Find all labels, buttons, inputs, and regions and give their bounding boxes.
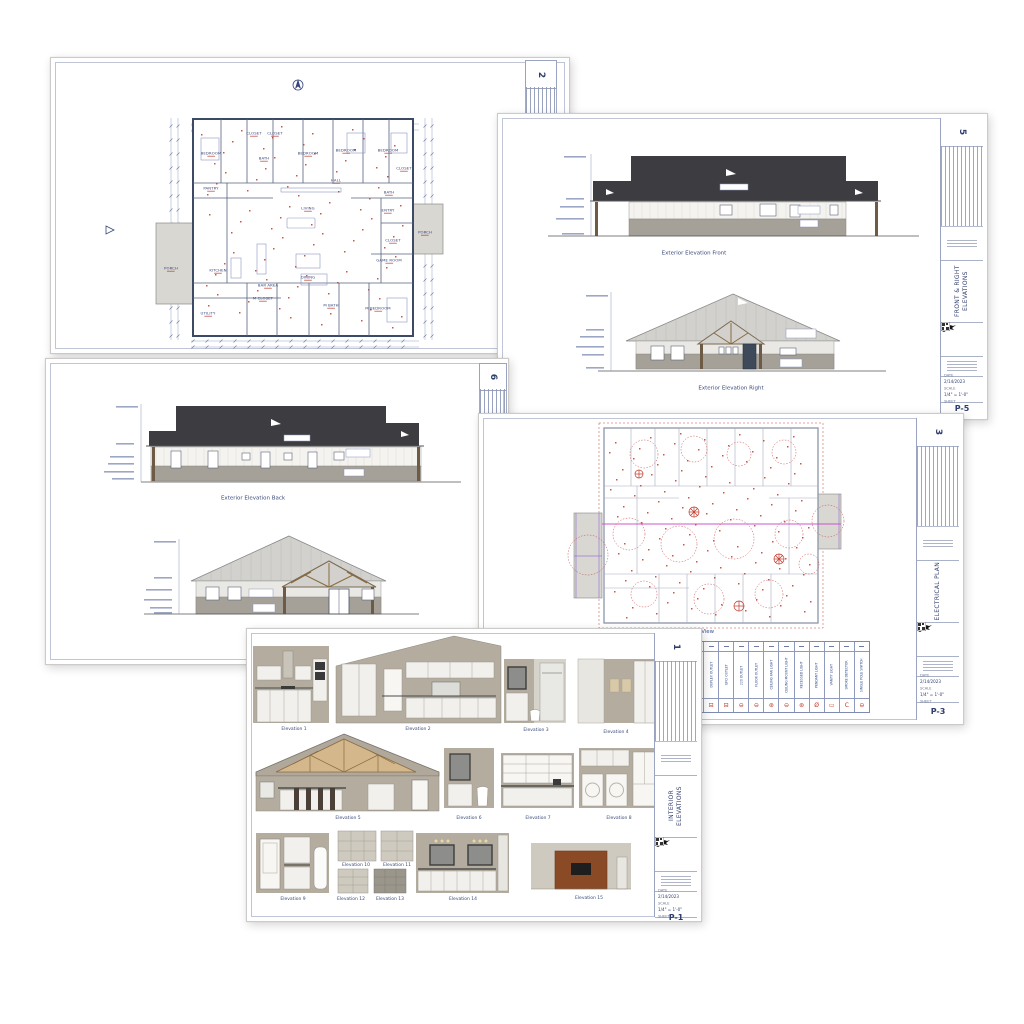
room-label: BEDROOM bbox=[201, 151, 222, 156]
titleblock-field-text: 1/4" = 1'-0" bbox=[944, 393, 968, 397]
room-label: BATH bbox=[259, 156, 270, 161]
legend-column: PENDANT LIGHTØ bbox=[810, 642, 825, 712]
legend-symbol-icon: ⊖ bbox=[779, 699, 793, 712]
builder-logo bbox=[655, 837, 697, 872]
room-label: BEDROOM bbox=[336, 148, 357, 153]
elevation-title: Exterior Elevation Front bbox=[662, 250, 727, 256]
title-block: 5FRONT & RIGHT ELEVATIONSDATE2/14/2023SC… bbox=[940, 118, 983, 415]
legend-count-cell bbox=[840, 642, 854, 652]
interior-elevation-labels: Elevation 1Elevation 2Elevation 3Elevati… bbox=[247, 629, 701, 921]
room-label: BEDROOM bbox=[378, 148, 399, 153]
legend-symbol-icon: ⊛ bbox=[764, 699, 778, 712]
legend-label: 220 OUTLET bbox=[734, 652, 748, 699]
room-label: KITCHEN bbox=[209, 268, 226, 273]
room-label: CLOSET bbox=[267, 131, 282, 136]
sheet-number-tab: 3 bbox=[917, 418, 959, 447]
room-label: CLOSET bbox=[385, 238, 400, 243]
legend-symbol-icon: ⊖ bbox=[734, 699, 748, 712]
legend-label: PENDANT LIGHT bbox=[810, 652, 824, 699]
room-label: CLOSET bbox=[246, 131, 261, 136]
legend-count-cell bbox=[719, 642, 733, 652]
titleblock-field-text: 1/4" = 1'-0" bbox=[920, 693, 944, 697]
qr-code-icon bbox=[655, 837, 664, 846]
revision-table bbox=[525, 87, 557, 114]
room-label: BAR AREA bbox=[258, 283, 278, 288]
legend-label: FLOOR OUTLET bbox=[749, 652, 763, 699]
legend-count-cell bbox=[734, 642, 748, 652]
title-block: 3ELECTRICAL PLANDATE2/14/2023SCALE1/4" =… bbox=[916, 418, 959, 720]
legend-count-cell bbox=[855, 642, 869, 652]
legend-symbol-icon: Ø bbox=[810, 699, 824, 712]
sheet-number-tab: 1 bbox=[655, 633, 697, 662]
room-label: BATH bbox=[384, 190, 395, 195]
legend-count-cell bbox=[764, 642, 778, 652]
legend-label: VANITY LIGHT bbox=[825, 652, 839, 699]
legend-symbol-icon: ⊖ bbox=[749, 699, 763, 712]
titleblock-field-text: 2/14/2023 bbox=[944, 380, 968, 384]
titleblock-field-text: 2/14/2023 bbox=[920, 680, 944, 684]
sheet-floor-plan[interactable]: BEDROOMCLOSETCLOSETBATHBEDROOMBEDROOMBED… bbox=[50, 57, 570, 354]
room-label: M CLOSET bbox=[253, 296, 273, 301]
titleblock-field-text: DATE bbox=[920, 674, 942, 678]
interior-elevation-label: Elevation 9 bbox=[280, 897, 305, 902]
interior-elevation-label: Elevation 11 bbox=[383, 863, 411, 868]
sheet-front-right-elevations[interactable]: Exterior Elevation FrontExterior Elevati… bbox=[497, 113, 988, 420]
legend-symbol-icon: C bbox=[840, 699, 854, 712]
interior-elevation-label: Elevation 5 bbox=[335, 816, 360, 821]
legend-label: GFCI OUTLET bbox=[719, 652, 733, 699]
electrical-legend-table: ELECTRICAL PANEL▮DUPLEX OUTLET⊟GFCI OUTL… bbox=[688, 641, 870, 713]
interior-elevation-label: Elevation 3 bbox=[523, 728, 548, 733]
interior-elevation-label: Elevation 10 bbox=[342, 863, 370, 868]
qr-code-icon bbox=[917, 622, 926, 631]
revision-table bbox=[941, 146, 983, 227]
room-label: BEDROOM bbox=[298, 151, 319, 156]
legend-count-cell bbox=[795, 642, 809, 652]
titleblock-field-text: DATE bbox=[658, 889, 680, 893]
legend-label: DUPLEX OUTLET bbox=[704, 652, 718, 699]
interior-elevation-label: Elevation 4 bbox=[603, 730, 628, 735]
interior-elevation-label: Elevation 13 bbox=[376, 897, 404, 902]
titleblock-field-text: SCALE bbox=[658, 902, 680, 906]
interior-elevation-label: Elevation 2 bbox=[405, 727, 430, 732]
room-label: DINING bbox=[301, 275, 316, 280]
discipline-label: INTERIOR ELEVATIONS bbox=[655, 775, 697, 838]
legend-count-cell bbox=[825, 642, 839, 652]
legend-column: DUPLEX OUTLET⊟ bbox=[704, 642, 719, 712]
room-label: UTILITY bbox=[201, 311, 216, 316]
revision-table bbox=[479, 389, 507, 414]
interior-elevation-label: Elevation 12 bbox=[337, 897, 365, 902]
room-label: ENTRY bbox=[382, 208, 395, 213]
room-label: HALL bbox=[331, 178, 341, 183]
floor-plan-room-labels: BEDROOMCLOSETCLOSETBATHBEDROOMBEDROOMBED… bbox=[51, 58, 569, 353]
titleblock-fields: DATE2/14/2023SCALE1/4" = 1'-0"SHEET bbox=[917, 676, 959, 703]
sheet-number-tab: 5 bbox=[941, 118, 983, 147]
discipline-label: ELECTRICAL PLAN bbox=[917, 560, 959, 623]
legend-count-cell bbox=[810, 642, 824, 652]
legend-label: CEILING FAN LIGHT bbox=[764, 652, 778, 699]
legend-column: CEILING FAN LIGHT⊛ bbox=[764, 642, 779, 712]
sheet-code: P-3 bbox=[917, 702, 959, 720]
legend-column: CEILING MOUNT LIGHT⊖ bbox=[779, 642, 794, 712]
legend-column: GFCI OUTLET⊟ bbox=[719, 642, 734, 712]
legend-symbol-icon: ⊟ bbox=[719, 699, 733, 712]
legend-label: SMOKE DETECTOR bbox=[840, 652, 854, 699]
legend-symbol-icon: ⊛ bbox=[795, 699, 809, 712]
sheet-back-left-elevations[interactable]: Exterior Elevation Back 6 bbox=[45, 358, 509, 665]
sheet-number-tab: 6 bbox=[479, 363, 507, 391]
legend-label: CEILING MOUNT LIGHT bbox=[779, 652, 793, 699]
room-label: CLOSET bbox=[396, 166, 411, 171]
revision-table bbox=[917, 446, 959, 527]
legend-count-cell bbox=[749, 642, 763, 652]
interior-elevation-label: Elevation 8 bbox=[606, 816, 631, 821]
titleblock-field-text: 2/14/2023 bbox=[658, 895, 682, 899]
legend-column: 220 OUTLET⊖ bbox=[734, 642, 749, 712]
room-label: PANTRY bbox=[203, 186, 218, 191]
legend-column: RECESSED LIGHT⊛ bbox=[795, 642, 810, 712]
project-info-lines bbox=[917, 526, 959, 561]
room-label: GAME ROOM bbox=[376, 258, 401, 263]
interior-elevation-label: Elevation 15 bbox=[575, 896, 603, 901]
builder-logo bbox=[917, 622, 959, 657]
room-label: M BATH bbox=[323, 303, 338, 308]
room-label: PORCH bbox=[164, 266, 178, 271]
interior-elevation-label: Elevation 7 bbox=[525, 816, 550, 821]
legend-symbol-icon: ⊟ bbox=[704, 699, 718, 712]
title-block: 1INTERIOR ELEVATIONSDATE2/14/2023SCALE1/… bbox=[654, 633, 697, 917]
qr-code-icon bbox=[941, 322, 950, 331]
titleblock-field-text: SCALE bbox=[944, 387, 966, 391]
interior-elevation-label: Elevation 14 bbox=[449, 897, 477, 902]
sheet-interior-elevations[interactable]: Elevation 1Elevation 2Elevation 3Elevati… bbox=[246, 628, 702, 922]
legend-column: SMOKE DETECTORC bbox=[840, 642, 855, 712]
room-label: M BEDROOM bbox=[365, 306, 390, 311]
front-right-elevation-titles: Exterior Elevation FrontExterior Elevati… bbox=[498, 114, 987, 419]
room-label: PORCH bbox=[418, 230, 432, 235]
legend-column: FLOOR OUTLET⊖ bbox=[749, 642, 764, 712]
legend-column: SINGLE POLE SWITCH⊖ bbox=[855, 642, 869, 712]
legend-symbol-icon: ▭ bbox=[825, 699, 839, 712]
elevation-title: Exterior Elevation Back bbox=[221, 495, 285, 501]
drawing-set-canvas: BEDROOMCLOSETCLOSETBATHBEDROOMBEDROOMBED… bbox=[0, 0, 1024, 1024]
interior-elevation-label: Elevation 6 bbox=[456, 816, 481, 821]
discipline-label: FRONT & RIGHT ELEVATIONS bbox=[941, 260, 983, 323]
room-label: LIVING bbox=[301, 206, 314, 211]
elevation-title: Exterior Elevation Right bbox=[698, 385, 763, 391]
titleblock-field-text: DATE bbox=[944, 374, 966, 378]
sheet-number-tab: 2 bbox=[525, 60, 557, 89]
legend-label: RECESSED LIGHT bbox=[795, 652, 809, 699]
back-left-elevation-titles: Exterior Elevation Back bbox=[46, 359, 508, 664]
interior-elevation-label: Elevation 1 bbox=[281, 727, 306, 732]
project-info-lines bbox=[655, 741, 697, 776]
titleblock-field-text: SCALE bbox=[920, 687, 942, 691]
revision-table bbox=[655, 661, 697, 742]
project-info-lines bbox=[941, 226, 983, 261]
legend-count-cell bbox=[779, 642, 793, 652]
builder-logo bbox=[941, 322, 983, 357]
titleblock-fields: DATE2/14/2023SCALE1/4" = 1'-0"SHEET bbox=[941, 376, 983, 403]
legend-column: VANITY LIGHT▭ bbox=[825, 642, 840, 712]
legend-count-cell bbox=[704, 642, 718, 652]
legend-label: SINGLE POLE SWITCH bbox=[855, 652, 869, 699]
legend-symbol-icon: ⊖ bbox=[855, 699, 869, 712]
